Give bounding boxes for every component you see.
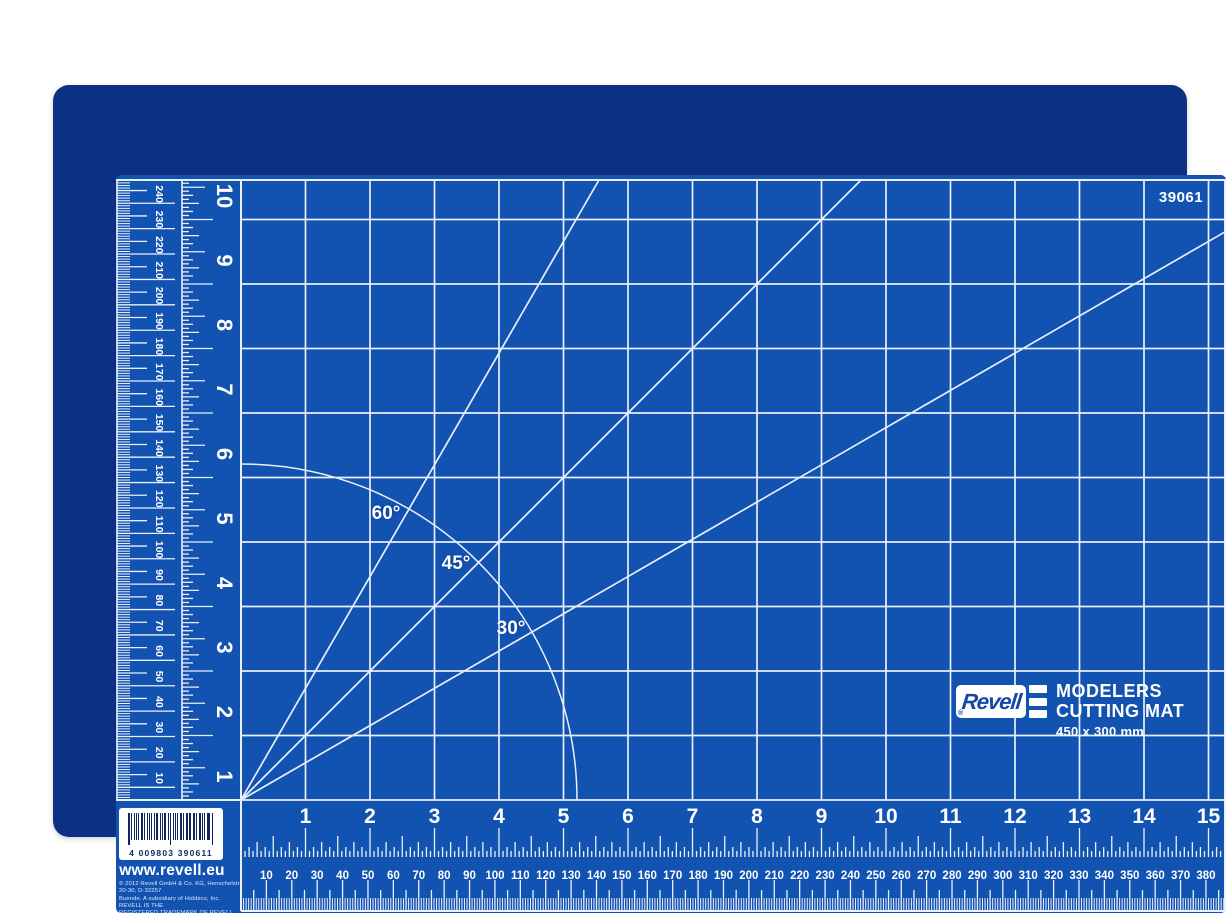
left-mm-label: 180 <box>153 338 165 356</box>
angle-guide-line-45 <box>241 180 861 800</box>
registered-trademark-icon: ® <box>958 710 963 717</box>
angle-guide-line-60 <box>241 180 599 800</box>
bottom-inch-label: 11 <box>939 805 962 828</box>
copyright-line: REGISTERED TRADEMARK OF REVELL GMBH & CO… <box>119 910 243 913</box>
bottom-inch-label: 3 <box>429 805 441 828</box>
barcode: 4 009803 390611 <box>119 808 223 860</box>
bottom-inch-label: 1 <box>300 805 312 828</box>
revell-logo-bars-icon <box>1029 685 1047 718</box>
left-inch-label: 8 <box>212 319 237 331</box>
left-mm-label: 170 <box>153 363 165 381</box>
left-mm-label: 80 <box>153 595 165 607</box>
left-inch-label: 2 <box>212 706 237 718</box>
bottom-inch-label: 9 <box>816 805 828 828</box>
left-mm-label: 100 <box>153 541 165 559</box>
copyright-line: Buende. A subsidiary of Hobbico, Inc. RE… <box>119 896 243 911</box>
left-mm-label: 150 <box>153 414 165 432</box>
revell-logo: Revell ® <box>956 685 1026 718</box>
angle-label-45: 45° <box>429 553 483 575</box>
product-size-label: 450 x 300 mm <box>1056 724 1144 739</box>
left-mm-label: 210 <box>153 261 165 279</box>
left-mm-label: 220 <box>153 236 165 254</box>
bottom-inch-label: 14 <box>1132 805 1156 828</box>
bottom-inch-label: 4 <box>493 805 505 828</box>
left-mm-label: 70 <box>153 620 165 632</box>
bottom-inch-label: 13 <box>1068 805 1091 828</box>
bottom-inch-label: 15 <box>1197 805 1221 828</box>
bottom-inch-label: 7 <box>687 805 699 828</box>
left-mm-label: 40 <box>153 696 165 708</box>
left-mm-label: 50 <box>153 671 165 683</box>
angle-label-30: 30° <box>484 618 538 640</box>
left-mm-label: 120 <box>153 490 165 508</box>
bottom-inch-label: 8 <box>751 805 763 828</box>
mat-grid-and-rulers: 1020304050607080901001101201301401501601… <box>116 175 1226 913</box>
website-url: www.revell.eu <box>116 862 228 880</box>
left-inch-label: 4 <box>212 577 237 590</box>
product-title-line2: CUTTING MAT <box>1056 701 1184 722</box>
left-inch-label: 5 <box>212 512 237 524</box>
left-mm-label: 190 <box>153 312 165 330</box>
product-title-line1: MODELERS <box>1056 681 1162 702</box>
left-mm-label: 110 <box>153 516 165 533</box>
left-mm-label: 90 <box>153 569 165 581</box>
left-inch-label: 9 <box>212 254 237 266</box>
left-mm-label: 240 <box>153 185 165 203</box>
bottom-inch-label: 2 <box>364 805 376 828</box>
left-mm-label: 230 <box>153 211 165 229</box>
left-mm-label: 30 <box>153 721 165 733</box>
cutting-mat-surface: 1020304050607080901001101201301401501601… <box>116 175 1226 913</box>
left-mm-label: 200 <box>153 287 165 305</box>
bottom-inch-label: 6 <box>622 805 634 828</box>
left-mm-label: 20 <box>153 747 165 759</box>
barcode-digits: 4 009803 390611 <box>119 848 223 858</box>
bottom-inch-label: 12 <box>1003 805 1026 828</box>
copyright-line: © 2012 Revell GmbH & Co. KG, Henschelstr… <box>119 881 243 896</box>
left-mm-label: 140 <box>153 439 165 457</box>
left-mm-label: 130 <box>153 465 165 483</box>
left-inch-label: 1 <box>212 770 237 782</box>
left-inch-label: 3 <box>212 641 237 653</box>
product-photo: 1020304050607080901001101201301401501601… <box>0 0 1229 922</box>
left-mm-label: 10 <box>153 772 165 784</box>
angle-label-60: 60° <box>359 503 413 525</box>
barcode-bars <box>128 813 214 845</box>
bottom-inch-label: 10 <box>874 805 897 828</box>
left-inch-label: 6 <box>212 448 237 460</box>
left-mm-label: 60 <box>153 645 165 657</box>
copyright-text: © 2012 Revell GmbH & Co. KG, Henschelstr… <box>119 881 243 913</box>
left-mm-label: 160 <box>153 388 165 406</box>
revell-logo-text: Revell <box>960 691 1021 713</box>
left-inch-label: 10 <box>212 184 237 208</box>
product-code: 39061 <box>1136 189 1226 206</box>
bottom-inch-label: 5 <box>558 805 570 828</box>
left-inch-label: 7 <box>212 383 237 395</box>
cutting-mat: 1020304050607080901001101201301401501601… <box>53 85 1187 837</box>
